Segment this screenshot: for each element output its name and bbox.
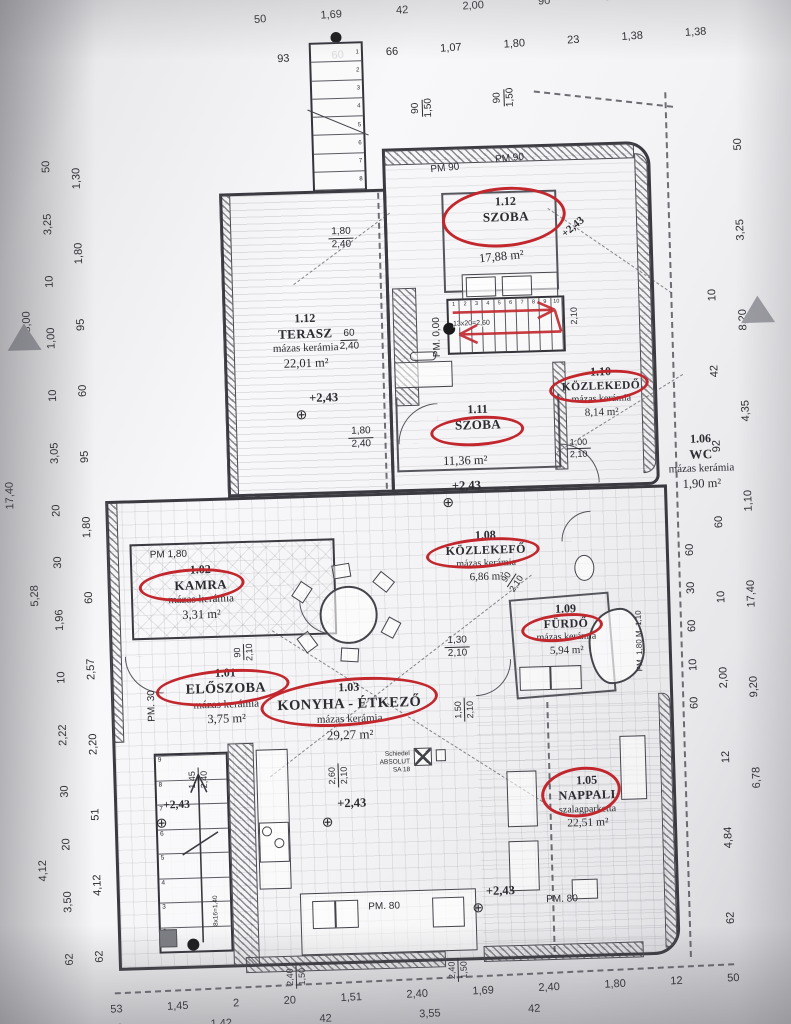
dim-value: 3,50 [62, 891, 75, 913]
dining-chair [340, 647, 359, 662]
dim-under: 2,40 [198, 771, 209, 789]
dim-value: 4,12 [91, 875, 104, 897]
room-label-kozlekedo-110: 1.10 KÖZLEKEDŐ mázas kerámia 8,14 m² [552, 363, 650, 421]
left-dim-col-4: 1,301,809560951,80602,572,20514,1262 [70, 168, 106, 963]
bottom-window-sill [484, 941, 644, 962]
room-label-wc: 1.06 WC mázas kerámia 1,90 m² [642, 430, 760, 494]
dim-value: 4,84 [722, 827, 735, 849]
dim-under: 2,10 [465, 701, 476, 719]
dim-over: 90 [410, 99, 424, 117]
room-finish: mázas kerámia [273, 341, 339, 357]
dim-value: 50 [40, 161, 52, 174]
dim-value: 60 [713, 515, 725, 528]
dim-under: 2,10 [570, 449, 588, 460]
room-number: 1.12 [495, 194, 516, 210]
dim-value: 12 [720, 751, 732, 764]
dim-under: 1,50 [458, 961, 469, 979]
dim-value: 2,22 [57, 724, 70, 746]
dim-value: 53 [110, 1003, 123, 1016]
level-mark-terasz: +2,43 [309, 390, 338, 406]
dim-value: 42 [708, 364, 720, 377]
window-dim-90-150-a: 90 1,50 [410, 98, 436, 118]
dining-chair [331, 563, 351, 580]
pm-30-label: PM. 30 [145, 666, 158, 722]
dim-value: 6,78 [750, 766, 763, 788]
dim-over: 1,80 [348, 425, 374, 439]
chimney-icon [414, 748, 433, 767]
level-mark-stair: +2,43 [163, 799, 190, 812]
floor-plan-scan: 501,69422,00905250 9360661,071,80231,381… [0, 0, 791, 1024]
stair-step: 2 [311, 62, 362, 82]
kitchen-counter-vertical [256, 749, 292, 890]
dim-value: 20 [60, 838, 72, 851]
dim-value: 3,05 [48, 442, 61, 464]
door-dim-150-210: 1,50 2,10 [453, 698, 476, 722]
dim-over: 1,45 [187, 768, 199, 792]
survey-point-nappali: ⊕ [472, 900, 484, 914]
room-number: 1.10 [590, 364, 611, 380]
level-mark-konyha: +2,43 [337, 795, 366, 811]
dim-under: 1,50 [504, 87, 517, 107]
dim-value: 17,40 [4, 482, 17, 510]
left-dim-col-2: 8,005,284,12 [20, 311, 49, 881]
dim-value: 62 [725, 911, 737, 924]
room-number: 1.11 [467, 402, 488, 418]
pm-180-label: PM 1,80 [150, 549, 188, 561]
dim-value: 90 [538, 0, 551, 8]
left-margin-triangle-marker [7, 323, 42, 351]
dim-value: 93 [277, 53, 290, 66]
room-number: 1.05 [576, 773, 597, 789]
chimney-label: Schiedel ABSOLUT SA 18 [358, 750, 411, 775]
room-area: 3,75 m² [207, 711, 246, 728]
dim-value: 60 [83, 592, 95, 605]
dim-value: 1,45 [167, 1000, 189, 1013]
room-label-konyha: 1.03 KONYHA - ÉTKEZŐ mázas kerámia 29,27… [264, 677, 436, 745]
room-area-szoba-111: 11,36 m² [443, 453, 488, 470]
room-area: 1,90 m² [682, 476, 721, 493]
dim-value: 1,38 [685, 26, 707, 39]
dim-value: 42 [319, 1012, 332, 1024]
dim-value: 30 [685, 582, 697, 595]
dim-value: 42 [396, 4, 409, 17]
dim-over: 1,00 [566, 437, 590, 449]
dim-value: 42 [528, 1003, 541, 1016]
dim-value: 62 [64, 953, 76, 966]
room-name: SZOBA [455, 416, 502, 434]
dim-value: 50 [254, 13, 267, 26]
door-dim-180-240-a: 1,80 2,40 [328, 226, 354, 252]
dim-value: 3,25 [734, 219, 747, 241]
dim-value: 10 [47, 390, 59, 403]
top-exterior-stair: 12345678 [309, 41, 367, 193]
dim-under: 2,40 [340, 340, 360, 353]
dim-value: 20 [283, 994, 296, 1007]
dim-under: 2,10 [338, 766, 349, 784]
dim-value: 30 [59, 786, 71, 799]
door-dim-100-210-a: 1,00 2,10 [566, 437, 590, 460]
dim-under: 2,10 [244, 643, 255, 661]
level-mark-szoba-111: +2,43 [452, 478, 481, 494]
dim-value: 17,40 [745, 580, 758, 608]
pm-000-label: PM. 0,00 [430, 295, 443, 357]
room-area: 22,01 m² [284, 355, 329, 372]
dim-over: 2,40 [284, 965, 296, 989]
dim-under: 1,50 [296, 968, 307, 986]
dim-value: 3,25 [42, 213, 55, 235]
gray-post [159, 929, 178, 948]
stair-step: 8 [314, 171, 365, 191]
pm-80-label-left: PM. 80 [368, 901, 400, 913]
room-name: FÜRDŐ [543, 616, 588, 632]
room-name: SZOBA [483, 208, 530, 226]
dim-value: 2,40 [538, 981, 560, 994]
dim-over: 2,40 [446, 958, 458, 982]
room-number: 1.12 [294, 311, 315, 327]
stove [432, 897, 465, 928]
room-finish: mázas kerámia [193, 697, 259, 713]
dim-over: 60 [340, 328, 358, 342]
dim-value: 4,12 [37, 859, 50, 881]
door-dim-130-210: 1,30 2,10 [444, 634, 470, 660]
dim-value: 1,80 [72, 243, 85, 265]
dim-value: 1,00 [45, 328, 58, 350]
dim-value: 95 [75, 318, 87, 331]
dim-value: 20 [50, 504, 62, 517]
dim-value: 2,40 [406, 988, 428, 1001]
stair-step: 3 [312, 80, 363, 100]
room-area: 22,51 m² [567, 815, 609, 831]
dim-value: 60 [686, 620, 698, 633]
bed-pillow [466, 276, 497, 297]
dim-value: 10 [706, 289, 718, 302]
survey-point-szoba-111: ⊕ [442, 495, 454, 509]
room-area: 5,94 m² [550, 643, 584, 658]
dim-value: 1,07 [440, 41, 462, 54]
door-dim-90-210-a: 90 2,10 [232, 643, 255, 661]
dim-value: 9,20 [748, 676, 761, 698]
room-label-kamra: 1.02 KAMRA mázas kerámia 3,31 m² [140, 561, 262, 625]
dim-value: 2 [233, 997, 240, 1009]
level-mark-nappali: +2,43 [486, 883, 515, 899]
dim-value: 95 [79, 450, 91, 463]
dim-under: 2,40 [331, 239, 351, 252]
dim-value: 62 [93, 950, 105, 963]
dim-value: 10 [55, 671, 67, 684]
room-name: NAPPALI [558, 787, 616, 804]
dashed-line-top-right [534, 90, 673, 107]
room-number: 1.02 [190, 562, 211, 578]
room-name: KAMRA [174, 577, 227, 595]
pm-80-label-right: PM. 80 [546, 893, 578, 905]
dim-value: 1,80 [604, 978, 626, 991]
room-area: 29,27 m² [327, 726, 374, 744]
room-name: TERASZ [278, 325, 333, 343]
room-label-nappali: 1.05 NAPPALI szalagparketta 22,51 m² [542, 772, 632, 832]
sofa [506, 770, 538, 827]
dim-value: 1,80 [503, 37, 525, 50]
dim-value: 60 [684, 544, 696, 557]
dim-under: 2,10 [448, 647, 468, 660]
dim-value: 66 [386, 45, 399, 58]
stair-step: 5 [313, 116, 364, 136]
stair-step: 6 [313, 135, 364, 155]
door-dim-180-240-b: 1,80 2,40 [348, 425, 374, 451]
dim-under: 2,40 [351, 438, 371, 451]
dim-value: 60 [77, 384, 89, 397]
chimney-line2: SA 18 [358, 766, 410, 775]
room-label-szoba-111: 1.11 SZOBA [427, 401, 528, 435]
room-label-furdo: 1.09 FÜRDŐ mázas kerámia 5,94 m² [519, 600, 613, 659]
dim-value: 23 [567, 34, 580, 47]
chimney-icon-small [436, 749, 446, 761]
dim-value: 52 [604, 0, 617, 3]
central-pier-wall [392, 288, 419, 407]
survey-point-stair: ⊕ [156, 815, 168, 829]
dim-value: 12 [670, 975, 683, 988]
dim-value: 2,20 [87, 733, 100, 755]
top-dim-row-1: 501,69422,00905250 [254, 0, 684, 26]
right-dim-col-inner: 6030601060 [684, 544, 701, 709]
dim-value: 1,38 [621, 30, 643, 43]
right-margin-triangle-marker [740, 295, 775, 323]
window-dim-240-150-b: 2,40 1,50 [446, 958, 469, 982]
stair-step: 1 [311, 43, 362, 63]
dim-over: 90 [491, 89, 505, 107]
dim-value: 10 [715, 591, 727, 604]
dim-value: 10 [687, 658, 699, 671]
window-dim-90-150-b: 90 1,50 [491, 87, 517, 107]
dim-value: 50 [732, 138, 744, 151]
window-dim-60-240: 60 2,40 [339, 327, 359, 353]
room-finish: mázas kerámia [668, 462, 734, 478]
dim-over: 2,60 [327, 764, 339, 788]
dim-value: 1,69 [320, 8, 342, 21]
room-number: 1.09 [555, 601, 576, 617]
dim-value: 1,30 [70, 168, 83, 190]
chimney-line1: Schiedel ABSOLUT [358, 750, 410, 767]
dim-value: 51 [89, 809, 101, 822]
dim-value: 4,35 [739, 399, 752, 421]
dim-value: 1,80 [81, 517, 94, 539]
desk [394, 361, 453, 389]
room-area: 3,31 m² [182, 607, 221, 624]
dim-value: 1,96 [53, 609, 66, 631]
room-finish: mázas kerámia [168, 593, 234, 609]
dim-value: 1,51 [340, 991, 362, 1004]
dim-over: 1,30 [444, 634, 470, 648]
dim-value: 3,55 [419, 1007, 441, 1020]
dim-over: 1,50 [453, 698, 465, 722]
room-number: 1.03 [338, 680, 359, 696]
dim-value: 50 [727, 972, 740, 985]
dim-value: 10 [43, 275, 55, 288]
bed-pillow [502, 275, 533, 296]
dim-over: 1,80 [328, 226, 354, 240]
stair-step: 7 [314, 153, 365, 173]
room-finish: mázas kerámia [571, 393, 631, 407]
room-number: 1.01 [215, 665, 236, 681]
room-area: 8,14 m² [585, 406, 619, 421]
room-number: 1.08 [475, 528, 496, 544]
dim-value: 1,69 [472, 984, 494, 997]
dim-value: 1,10 [742, 490, 755, 512]
room-finish: mázas kerámia [536, 631, 596, 645]
room-number: 1.06 [690, 431, 711, 447]
dim-value: 60 [688, 696, 700, 709]
right-dim-col-mid: 10429260102,00124,8462 [706, 289, 737, 924]
dim-value: 1,42 [210, 1017, 232, 1024]
window-dim-240-150-a: 2,40 1,50 [284, 965, 307, 989]
room-name: WC [689, 446, 713, 463]
dim-value: 2,00 [717, 666, 730, 688]
left-dim-col-outer: 17,40 [4, 482, 20, 612]
survey-point-konyha: ⊕ [322, 814, 334, 828]
room-label-kozlekedo-108: 1.08 KÖZLEKEFŐ mázas kerámia 6,86 m² [427, 526, 545, 586]
opening-dim-260-210: 2,60 2,10 [327, 763, 350, 787]
dim-value: 2,57 [85, 658, 98, 680]
dim-under: 1,50 [423, 98, 436, 118]
dim-over: 90 [232, 644, 244, 660]
dim-value: 2,00 [462, 0, 484, 12]
stair-dim-145-240: 1,45 2,40 [187, 768, 210, 792]
room-name: KONYHA - ÉTKEZŐ [277, 693, 421, 715]
dim-value: 5,28 [29, 585, 42, 607]
room-label-szoba-112: 1.12 SZOBA [449, 192, 562, 227]
survey-point-terasz: ⊕ [295, 407, 307, 421]
dim-value: 30 [52, 557, 64, 570]
red-stair-direction-annotation [442, 295, 572, 355]
